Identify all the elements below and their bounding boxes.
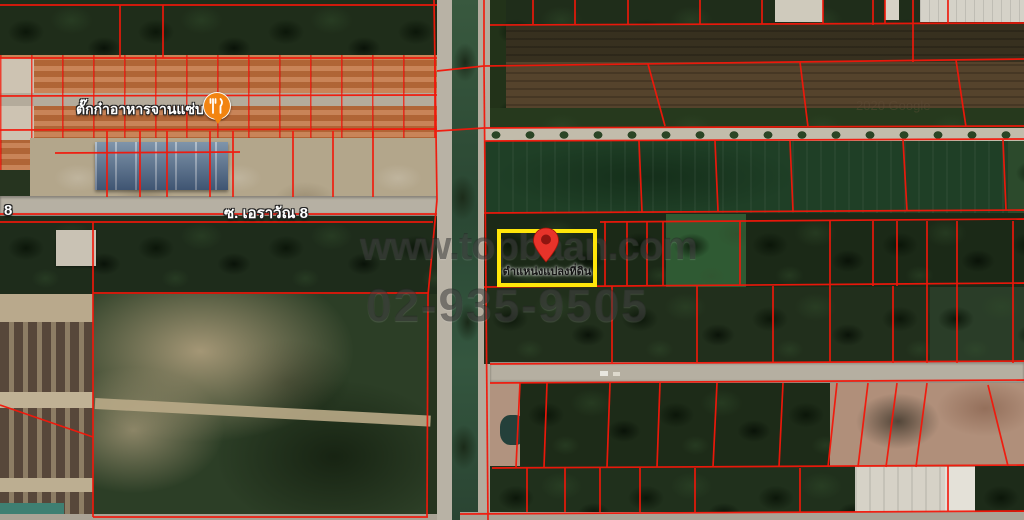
restaurant-poi-icon[interactable] bbox=[203, 92, 231, 120]
map-credit: 2020 Google bbox=[856, 98, 930, 113]
plot-location-label: ตำแหน่งแปลงที่ดิน bbox=[501, 262, 593, 280]
satellite-map[interactable]: 8 ซ. เอราวัณ 8 ตั๊กก๋าอาหารจานแซ่บ 2020 … bbox=[0, 0, 1024, 520]
location-pin-icon bbox=[530, 226, 562, 264]
plot-pin[interactable] bbox=[530, 226, 562, 264]
fork-knife-icon bbox=[204, 93, 230, 119]
road-label-edge: 8 bbox=[4, 202, 12, 219]
road-label-soi-erawan-8: ซ. เอราวัณ 8 bbox=[224, 201, 308, 225]
restaurant-label: ตั๊กก๋าอาหารจานแซ่บ bbox=[76, 99, 204, 121]
